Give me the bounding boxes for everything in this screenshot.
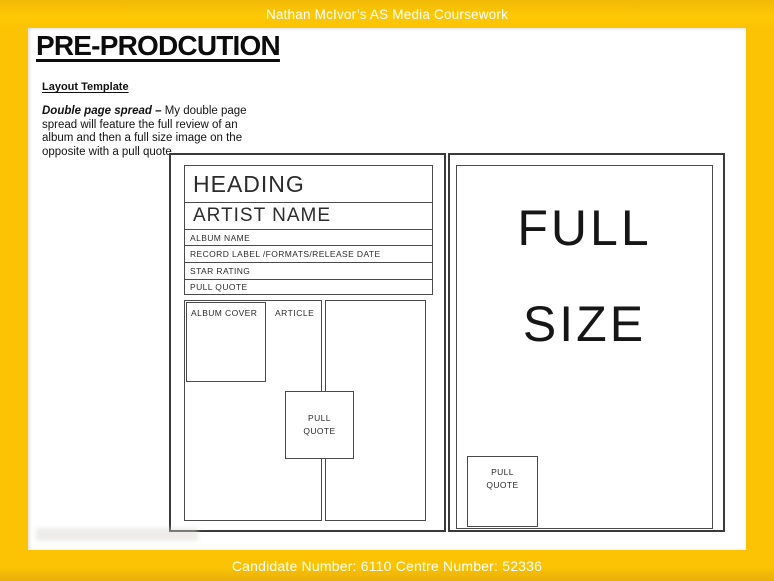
- bottom-banner: Candidate Number: 6110 Centre Number: 52…: [0, 550, 774, 581]
- row-album-name: ALBUM NAME: [184, 229, 433, 246]
- description-paragraph: Double page spread – My double page spre…: [42, 105, 248, 159]
- section-subtitle: Layout Template: [42, 81, 129, 93]
- slide-body: PRE-PRODCUTION Layout Template Double pa…: [28, 28, 746, 550]
- row-record-label: RECORD LABEL /FORMATS/RELEASE DATE: [184, 245, 433, 263]
- page-title: PRE-PRODCUTION: [36, 30, 280, 62]
- row-pull-quote: PULL QUOTE: [184, 279, 433, 295]
- article-label: ARTICLE: [275, 308, 314, 318]
- layout-left-page-box: HEADING ARTIST NAME ALBUM NAME RECORD LA…: [169, 153, 446, 532]
- left-pull-quote-box: PULL QUOTE: [285, 391, 354, 459]
- paragraph-line1: My double page: [162, 105, 247, 117]
- right-pull-quote-box: PULL QUOTE: [467, 456, 538, 527]
- album-cover-box: ALBUM COVER: [186, 302, 266, 382]
- row-artist-name: ARTIST NAME: [184, 202, 433, 230]
- layout-right-page-box: FULL SIZE PULL QUOTE: [448, 153, 725, 532]
- top-banner: Nathan McIvor’s AS Media Coursework: [0, 0, 774, 28]
- row-heading: HEADING: [184, 165, 433, 203]
- banner-title: Nathan McIvor’s AS Media Coursework: [266, 7, 508, 22]
- row-star-rating: STAR RATING: [184, 262, 433, 280]
- full-size-image-box: FULL SIZE PULL QUOTE: [456, 165, 713, 529]
- full-size-label: FULL SIZE: [457, 180, 712, 372]
- paragraph-lead: Double page spread –: [42, 105, 162, 117]
- candidate-number-text: Candidate Number: 6110 Centre Number: 52…: [232, 558, 542, 574]
- coursework-slide: Nathan McIvor’s AS Media Coursework PRE-…: [0, 0, 774, 581]
- left-page-header-rows: HEADING ARTIST NAME ALBUM NAME RECORD LA…: [184, 165, 433, 295]
- faint-watermark: [36, 528, 198, 541]
